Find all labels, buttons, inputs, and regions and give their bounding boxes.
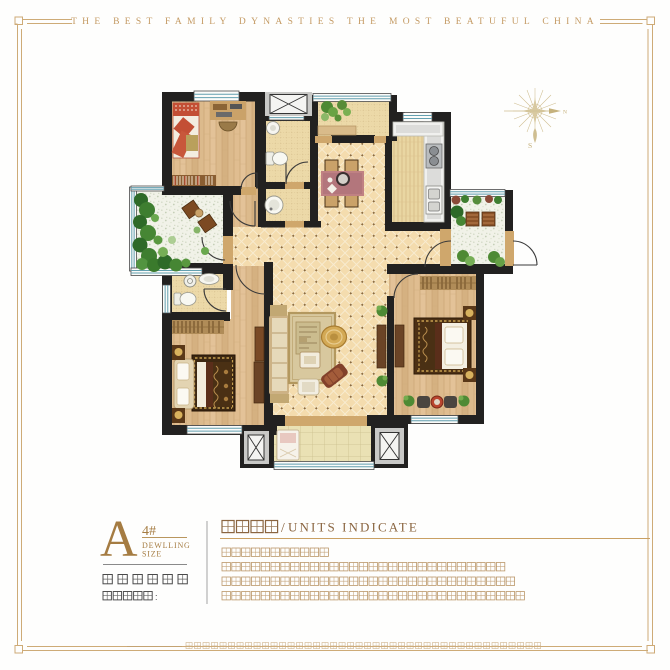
svg-text:THE BEST FAMILY DYNASTIES THE: THE BEST FAMILY DYNASTIES THE MOST BEATU… (71, 17, 599, 27)
svg-text:SIZE: SIZE (142, 550, 162, 559)
svg-text:4#: 4# (142, 524, 156, 539)
svg-text:S: S (528, 141, 532, 150)
svg-text:/: / (281, 520, 285, 535)
svg-text::: : (155, 592, 158, 602)
svg-text:N: N (563, 110, 567, 116)
svg-text:UNITS INDICATE: UNITS INDICATE (288, 520, 419, 535)
svg-text:A: A (100, 511, 138, 568)
